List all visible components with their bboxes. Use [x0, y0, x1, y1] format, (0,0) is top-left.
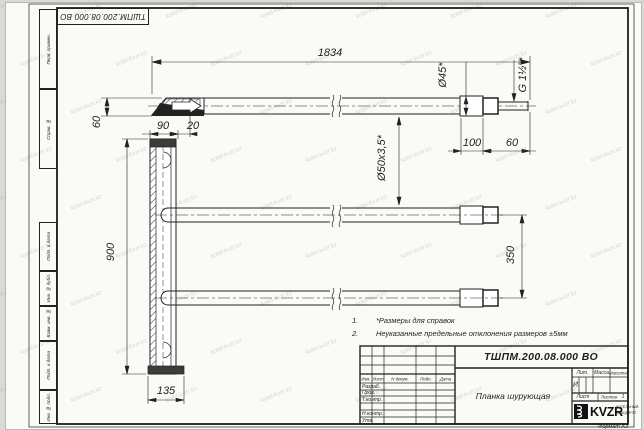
tb-row-prov: Пров.	[362, 390, 375, 396]
top-view	[148, 95, 536, 117]
front-view	[148, 139, 505, 374]
dim-blade-drop: 60	[91, 116, 103, 128]
tb-col-data: Дата	[440, 376, 451, 381]
dim-base-width: 135	[157, 385, 175, 397]
dim-pipe-spacing: 350	[505, 246, 517, 264]
note-2-num: 2.	[352, 329, 358, 338]
margin-box-sprav-no: Справ. №	[39, 89, 57, 169]
pipe-lower	[155, 288, 505, 310]
tb-sheets-value: 1	[622, 394, 625, 400]
dim-plate-width: 90	[157, 120, 169, 132]
titleblock-part-name: Планка шурующая	[476, 391, 550, 401]
margin-box-perv-primen: Перв. примен.	[39, 9, 57, 89]
tb-col-podp: Подп.	[420, 376, 431, 381]
company-sub-2: ЗАВОД РЭТ	[616, 411, 636, 415]
sheet-frame	[29, 4, 634, 427]
dim-total-length: 1834	[318, 47, 342, 59]
tb-scale-label: Масштаб	[609, 370, 629, 375]
note-1-text: *Размеры для справок	[376, 316, 455, 325]
margin-box-inv-podl: Инв. № подл.	[39, 390, 57, 424]
format-label: Формат А3	[598, 424, 628, 430]
dim-plate-height: 900	[105, 243, 117, 261]
dim-blade-offset: 20	[187, 120, 199, 132]
tb-row-utv: Утв.	[362, 418, 373, 424]
note-1-num: 1.	[352, 316, 358, 325]
tb-col-ndoc: N докум.	[391, 376, 408, 381]
margin-box-podp-data-1: Подп. и дата	[39, 222, 57, 271]
tb-row-nkontr: Н.контр.	[362, 411, 383, 417]
dim-coupler-len: 100	[463, 137, 481, 149]
dim-pipe-spec: Ø50х3,5*	[376, 135, 388, 181]
tb-sheets-label: Листов	[601, 395, 617, 400]
dim-thread: G 1½"*	[517, 57, 529, 92]
titleblock-doc-number: ТШПМ.200.08.000 ВО	[484, 351, 598, 363]
tb-row-tkontr: Т.контр.	[362, 397, 382, 403]
company-sub-1: КОТЕЛЬНЫЙ	[616, 405, 639, 409]
tb-col-list: Лист	[372, 376, 383, 381]
margin-box-podp-data-2: Подп. и дата	[39, 341, 57, 390]
blade	[152, 98, 204, 116]
dim-coupler-dia: Ø45*	[437, 62, 449, 87]
doc-number-stamp: ТШПМ.200.08.000 ВО	[57, 8, 149, 25]
tb-lit-label: Лит.	[577, 370, 589, 376]
margin-box-inv-dubl: Инв. № дубл.	[39, 271, 57, 306]
doc-number-stamp-text: ТШПМ.200.08.000 ВО	[60, 12, 146, 21]
tb-col-izm: Изм.	[361, 376, 370, 381]
tb-lit-value: И	[573, 382, 578, 389]
drawing-geometry	[0, 0, 644, 430]
pipe-upper	[155, 205, 505, 227]
note-2-text: Неуказанные предельные отклонения размер…	[376, 329, 568, 338]
margin-box-vzam-inv: Взам. инв. №	[39, 306, 57, 341]
tb-row-razrab: Разраб.	[362, 384, 380, 390]
tb-sheet-label: Лист	[577, 394, 590, 400]
tb-mass-label: Масса	[594, 370, 609, 376]
kvzr-logo-icon	[574, 404, 588, 419]
dim-thread-len: 60	[506, 137, 518, 149]
